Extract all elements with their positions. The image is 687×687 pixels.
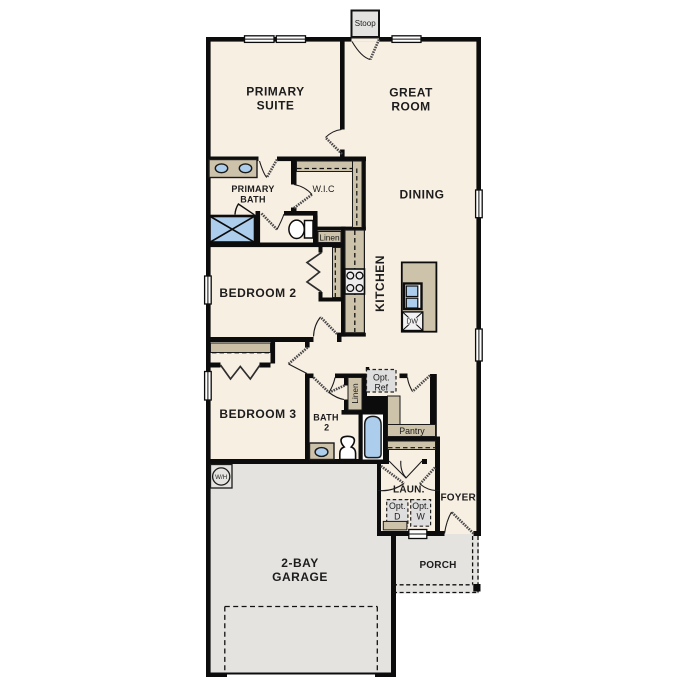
svg-text:PORCH: PORCH — [419, 560, 456, 571]
svg-text:BATH: BATH — [240, 194, 266, 204]
svg-text:Linen: Linen — [350, 383, 360, 404]
svg-text:Opt.: Opt. — [389, 501, 406, 511]
svg-text:GREAT: GREAT — [389, 86, 433, 100]
svg-text:Pantry: Pantry — [399, 426, 425, 436]
svg-text:2: 2 — [324, 423, 329, 433]
svg-text:W/H: W/H — [215, 474, 227, 481]
svg-text:W.I.C: W.I.C — [313, 184, 335, 194]
svg-text:GARAGE: GARAGE — [272, 570, 328, 584]
svg-text:Stoop: Stoop — [355, 19, 376, 28]
svg-text:FOYER: FOYER — [440, 493, 476, 504]
svg-text:2-BAY: 2-BAY — [281, 556, 318, 570]
svg-text:SUITE: SUITE — [257, 99, 295, 113]
svg-text:LAUN.: LAUN. — [393, 484, 425, 495]
svg-text:ROOM: ROOM — [391, 100, 430, 114]
svg-text:BEDROOM 2: BEDROOM 2 — [219, 286, 296, 300]
svg-text:Ref: Ref — [374, 382, 388, 392]
svg-text:KITCHEN: KITCHEN — [373, 255, 387, 312]
svg-text:DINING: DINING — [400, 188, 445, 202]
svg-text:D: D — [394, 511, 400, 521]
svg-text:DW: DW — [406, 318, 418, 325]
svg-text:Linen: Linen — [319, 232, 340, 242]
svg-text:Opt.: Opt. — [412, 501, 429, 511]
svg-text:W: W — [416, 511, 425, 521]
svg-text:BEDROOM 3: BEDROOM 3 — [219, 407, 296, 421]
svg-text:PRIMARY: PRIMARY — [246, 85, 304, 99]
svg-text:PRIMARY: PRIMARY — [231, 184, 274, 194]
svg-text:BATH: BATH — [313, 412, 339, 422]
svg-text:Opt.: Opt. — [373, 373, 390, 383]
